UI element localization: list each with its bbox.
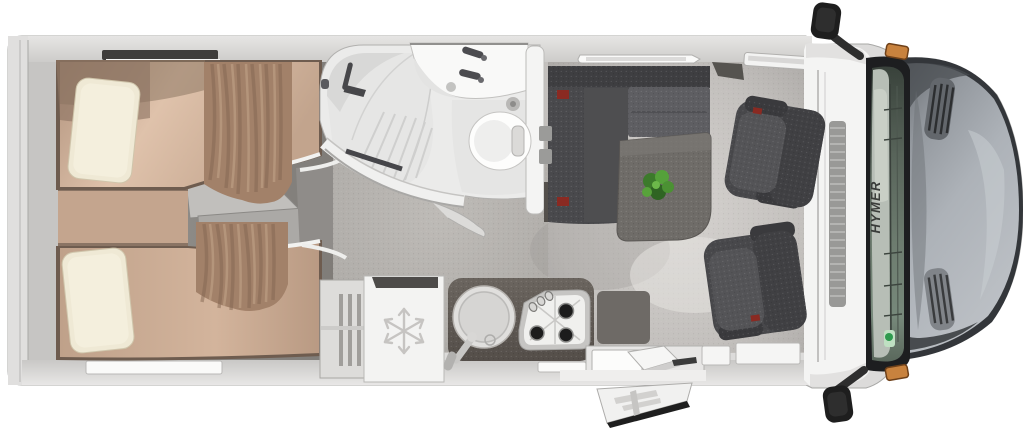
svg-text:HYMER: HYMER: [868, 181, 883, 234]
